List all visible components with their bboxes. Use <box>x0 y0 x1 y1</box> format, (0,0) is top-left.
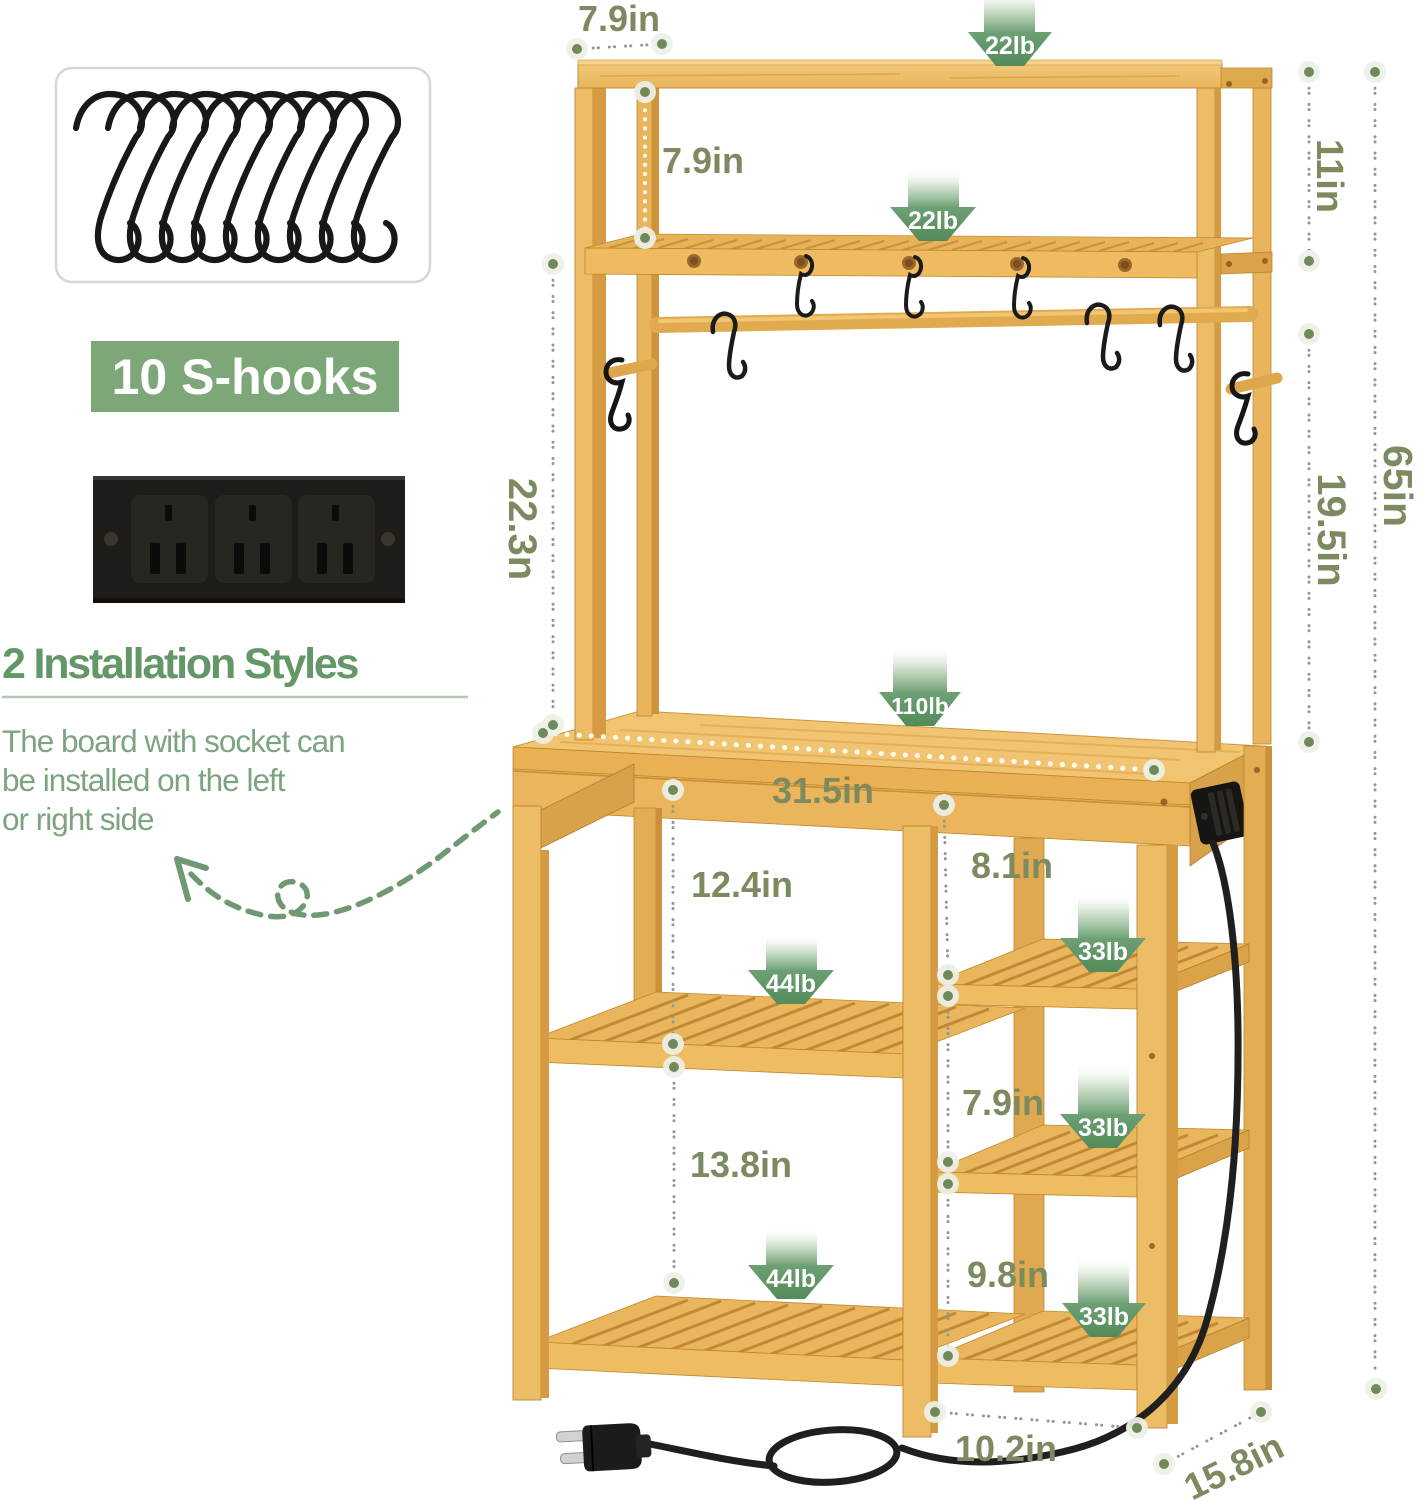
svg-text:33lb: 33lb <box>1078 1114 1128 1142</box>
svg-text:11in: 11in <box>1308 139 1350 213</box>
svg-text:19.5in: 19.5in <box>1309 473 1353 586</box>
svg-text:be installed on the left: be installed on the left <box>2 762 286 798</box>
svg-text:7.9in: 7.9in <box>662 140 744 181</box>
svg-text:33lb: 33lb <box>1079 1303 1129 1331</box>
svg-text:or right side: or right side <box>2 801 154 837</box>
svg-text:13.8in: 13.8in <box>690 1144 792 1185</box>
svg-text:9.8in: 9.8in <box>967 1254 1049 1295</box>
svg-text:22lb: 22lb <box>985 32 1035 60</box>
svg-text:33lb: 33lb <box>1078 938 1128 966</box>
svg-text:7.9in: 7.9in <box>578 0 660 39</box>
svg-text:22lb: 22lb <box>908 207 958 235</box>
svg-text:The board with socket can: The board with socket can <box>2 723 345 759</box>
svg-text:44lb: 44lb <box>766 1265 816 1293</box>
svg-text:10.2in: 10.2in <box>955 1428 1057 1469</box>
svg-text:8.1in: 8.1in <box>971 845 1053 886</box>
svg-text:31.5in: 31.5in <box>772 770 874 811</box>
svg-text:110lb: 110lb <box>891 693 949 719</box>
svg-text:65in: 65in <box>1375 445 1421 527</box>
svg-text:12.4in: 12.4in <box>691 864 793 905</box>
svg-text:7.9in: 7.9in <box>962 1082 1044 1123</box>
svg-text:44lb: 44lb <box>766 970 816 998</box>
svg-text:10 S-hooks: 10 S-hooks <box>112 349 379 405</box>
svg-text:2 Installation Styles: 2 Installation Styles <box>2 640 359 688</box>
svg-text:22.3n: 22.3n <box>500 478 544 580</box>
